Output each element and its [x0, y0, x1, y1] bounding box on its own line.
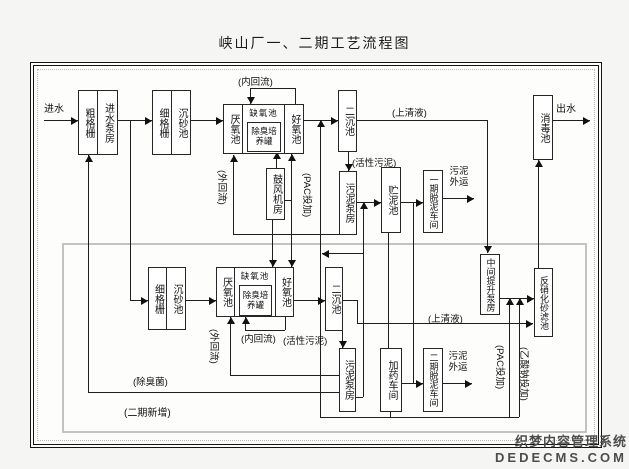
arrowhead-right-icon [331, 117, 338, 125]
p1-grit-chamber-box: 沉砂池 [171, 90, 191, 155]
p1-pac-dosing-label: (PAC投加) [301, 173, 315, 217]
watermark: 织梦内容管理系统 DEDECMS.COM [495, 431, 627, 465]
flow-line-vertical [295, 88, 296, 104]
p2-aerobic-tank-label: 好氧池 [280, 277, 290, 307]
arrowhead-right-icon [209, 297, 216, 305]
flow-line-vertical [509, 298, 510, 417]
p2-aerobic-tank-box: 好氧池 [275, 267, 294, 317]
arrowhead-down-icon [339, 341, 347, 348]
arrowhead-right-icon [465, 380, 472, 388]
p2-denitrification-sand-filter-box: 反硝化砂滤池 [534, 268, 553, 337]
process-flow-diagram-page: 峡山厂一、二期工艺流程图 粗格栅 进水泵房 细格栅 沉砂池 厌氧池 缺氧池 除臭… [0, 0, 629, 469]
arrowhead-up-icon [230, 155, 238, 162]
p2-deodor-culture-tank-label: 除臭培养罐 [240, 291, 271, 311]
p1-aerobic-tank-label: 好氧池 [289, 114, 299, 144]
p2-dosing-workshop-box: 加药车间 [380, 348, 402, 412]
p2-dewatering-workshop-label: 二期脱泥车间 [429, 353, 438, 407]
flow-line-vertical [88, 155, 89, 392]
p1-external-reflux-label: (外回流) [216, 170, 230, 205]
p2-anoxic-tank-label: 缺氧池 [235, 270, 275, 282]
p2-grit-chamber-label: 沉砂池 [171, 284, 181, 314]
flow-line-vertical [291, 154, 292, 267]
p1-activated-sludge-label: (活性污泥) [352, 155, 396, 169]
flow-line-vertical [357, 300, 358, 323]
disinfection-tank-box: 消毒池 [533, 95, 553, 160]
p1-anaerobic-tank-box: 厌氧池 [223, 104, 243, 154]
p2-sludge-pump-house-label: 污泥泵房 [343, 360, 353, 400]
p1-sludge-pump-house-label: 污泥泵房 [343, 183, 353, 223]
arrowhead-right-icon [526, 320, 533, 328]
p1-deodor-culture-tank-label: 除臭培养罐 [248, 127, 280, 147]
p1-supernatant-label: (上清液) [392, 105, 427, 119]
flow-line-vertical [390, 412, 391, 418]
arrowhead-up-icon [516, 298, 524, 305]
p2-grit-chamber-box: 沉砂池 [166, 267, 186, 330]
arrowhead-up-icon [288, 154, 296, 161]
p2-denitrification-sand-filter-label: 反硝化砂滤池 [539, 276, 548, 330]
arrowhead-right-icon [145, 117, 152, 125]
p2-pac-dosing-label: (PAC投加) [494, 345, 508, 389]
p2-anaerobic-tank-label: 厌氧池 [221, 277, 231, 307]
arrowhead-up-icon [242, 317, 250, 324]
watermark-text-en: DEDECMS.COM [495, 450, 627, 465]
flow-line-vertical [230, 317, 231, 375]
p1-dewatering-workshop-box: 一期脱泥车间 [423, 170, 443, 233]
p2-internal-reflux-label: (内回流) [241, 331, 276, 345]
arrowhead-down-icon [288, 260, 296, 267]
p2-external-reflux-label: (外回流) [208, 329, 222, 364]
arrowhead-down-icon [484, 246, 492, 253]
p2-anoxic-tank-box: 缺氧池 除臭培养罐 [234, 267, 276, 317]
p1-anaerobic-tank-label: 厌氧池 [228, 114, 238, 144]
p2-secondary-clarifier-label: 二沉池 [329, 284, 339, 314]
arrowhead-up-icon [85, 155, 93, 162]
arrowhead-right-icon [527, 295, 534, 303]
p1-anoxic-tank-label: 缺氧池 [243, 107, 284, 119]
p1-secondary-clarifier-box: 二沉池 [338, 90, 357, 152]
p1-aerobic-tank-box: 好氧池 [284, 104, 304, 154]
flow-line-vertical [487, 120, 488, 253]
arrowhead-right-icon [416, 380, 423, 388]
flow-line-vertical [320, 120, 321, 417]
p1-blower-house-label: 鼓风机房 [271, 174, 281, 214]
arrowhead-up-icon [317, 120, 325, 127]
arrowhead-right-icon [71, 117, 78, 125]
p1-coarse-screen-box: 粗格栅 [78, 90, 98, 155]
p1-fine-screen-label: 细格栅 [157, 108, 167, 138]
flow-line-horizontal [320, 417, 519, 418]
flow-line-vertical [233, 155, 234, 234]
arrowhead-up-icon [506, 298, 514, 305]
p2-dosing-workshop-label: 加药车间 [386, 360, 396, 400]
diagram-title: 峡山厂一、二期工艺流程图 [0, 33, 629, 53]
arrowhead-right-icon [141, 297, 148, 305]
p1-sludge-pump-house-box: 污泥泵房 [339, 171, 357, 235]
flow-line-vertical [285, 317, 286, 330]
p1-deodor-culture-tank-box: 除臭培养罐 [247, 122, 281, 152]
p2-sodium-acetate-dosing-label: (乙酸钠投加) [518, 347, 532, 401]
flow-line-horizontal [343, 300, 357, 301]
p1-inlet-pump-house-box: 进水泵房 [97, 90, 118, 155]
arrowhead-right-icon [318, 297, 325, 305]
p2-sludge-out-label: 污泥外运 [445, 351, 471, 374]
p1-internal-reflux-label: (内回流) [238, 74, 273, 88]
p1-sludge-out-label: 污泥外运 [446, 166, 472, 189]
flow-line-horizontal [250, 88, 295, 89]
p2-intermediate-lift-pump-house-label: 中间提升泵房 [486, 258, 495, 312]
flow-line-vertical [538, 160, 539, 268]
p2-deodor-culture-tank-box: 除臭培养罐 [239, 285, 272, 316]
flow-line-horizontal [357, 120, 488, 121]
flow-line-horizontal [88, 392, 339, 393]
flow-line-vertical [363, 202, 364, 397]
p1-secondary-clarifier-label: 二沉池 [343, 106, 353, 136]
p1-inlet-pump-house-label: 进水泵房 [103, 103, 113, 143]
p1-coarse-screen-label: 粗格栅 [83, 108, 93, 138]
flow-line-vertical [130, 120, 131, 300]
arrowhead-down-icon [247, 97, 255, 104]
p2-activated-sludge-label: (活性污泥) [283, 333, 327, 347]
p2-anaerobic-tank-box: 厌氧池 [216, 267, 235, 317]
watermark-text-cn: 织梦内容管理系统 [495, 431, 627, 450]
arrowhead-up-icon [227, 317, 235, 324]
p1-fine-screen-box: 细格栅 [152, 90, 172, 155]
p2-secondary-clarifier-box: 二沉池 [325, 267, 343, 331]
flow-line-horizontal [230, 375, 339, 376]
arrowhead-right-icon [374, 199, 381, 207]
flow-line-horizontal [356, 397, 363, 398]
arrowhead-down-icon [269, 260, 277, 267]
p2-dewatering-workshop-box: 二期脱泥车间 [423, 348, 443, 412]
flow-line-vertical [388, 233, 389, 348]
flow-line-vertical [413, 202, 414, 383]
p1-anoxic-tank-box: 缺氧池 除臭培养罐 [242, 104, 285, 154]
p2-sludge-pump-house-box: 污泥泵房 [339, 348, 356, 412]
arrowhead-up-icon [535, 160, 543, 167]
arrowhead-right-icon [416, 199, 423, 207]
p1-sludge-storage-tank-box: 贮泥池 [381, 167, 401, 233]
arrowhead-right-icon [467, 195, 474, 203]
flow-line-horizontal [233, 234, 339, 235]
arrowhead-right-icon [583, 117, 590, 125]
arrowhead-up-icon [360, 202, 368, 209]
phase2-region-tag: (二期新增) [124, 404, 171, 419]
p2-supernatant-label: (上清液) [428, 311, 463, 325]
outflow-label: 出水 [556, 100, 576, 115]
p2-fine-screen-box: 细格栅 [148, 267, 167, 330]
p1-blower-house-box: 鼓风机房 [266, 168, 285, 220]
disinfection-tank-label: 消毒池 [538, 113, 548, 143]
p1-sludge-storage-tank-label: 贮泥池 [386, 185, 396, 215]
arrowhead-left-icon [322, 250, 329, 258]
p2-intermediate-lift-pump-house-box: 中间提升泵房 [480, 254, 500, 315]
p2-deodor-bacteria-label: (除臭菌) [133, 374, 168, 388]
p1-grit-chamber-label: 沉砂池 [176, 108, 186, 138]
p2-fine-screen-label: 细格栅 [153, 284, 163, 314]
inflow-label: 进水 [44, 100, 64, 115]
p1-dewatering-workshop-label: 一期脱泥车间 [429, 175, 438, 229]
arrowhead-right-icon [216, 117, 223, 125]
